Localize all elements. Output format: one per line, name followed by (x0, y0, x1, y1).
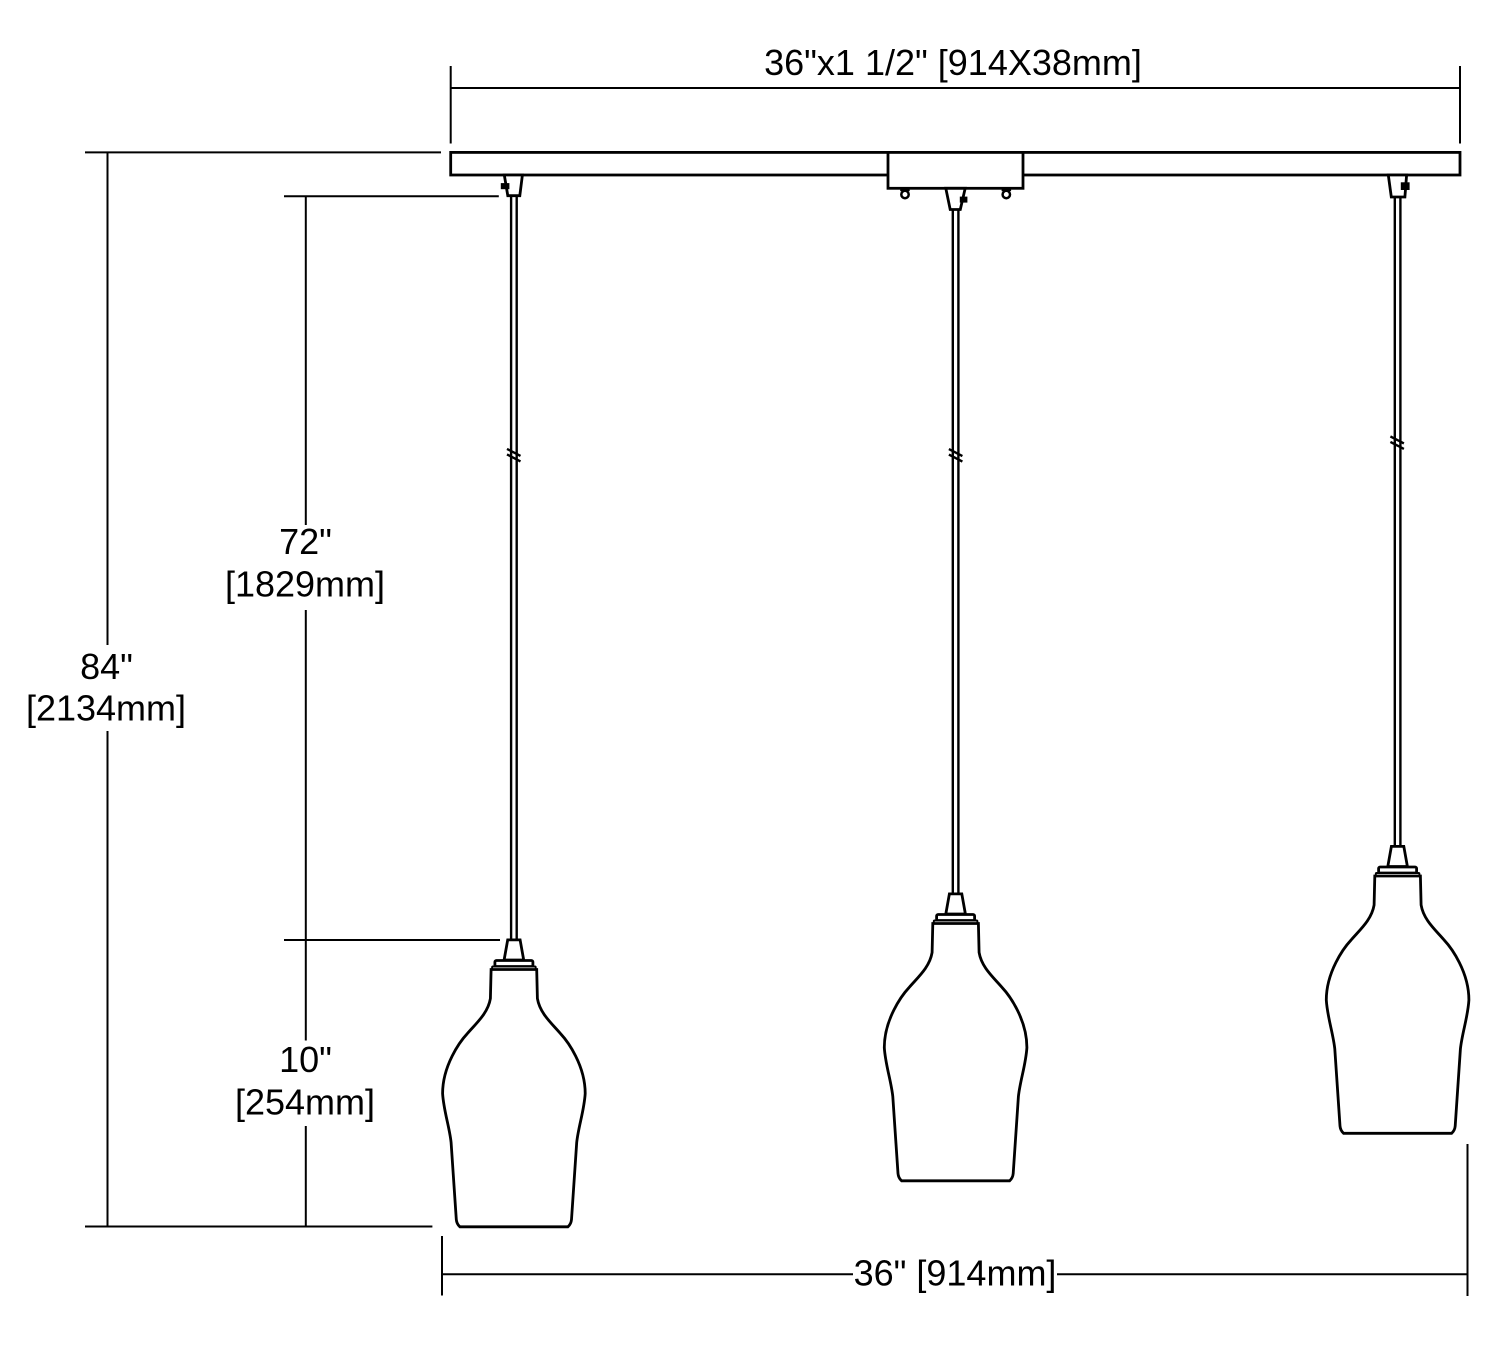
svg-text:36"x1 1/2" [914X38mm]: 36"x1 1/2" [914X38mm] (764, 42, 1142, 83)
svg-text:[1829mm]: [1829mm] (225, 564, 385, 605)
svg-text:36" [914mm]: 36" [914mm] (854, 1253, 1057, 1294)
svg-text:84": 84" (80, 646, 133, 687)
svg-text:[2134mm]: [2134mm] (26, 688, 186, 729)
svg-text:72": 72" (279, 521, 332, 562)
svg-text:[254mm]: [254mm] (235, 1082, 375, 1123)
svg-text:10": 10" (279, 1039, 332, 1080)
